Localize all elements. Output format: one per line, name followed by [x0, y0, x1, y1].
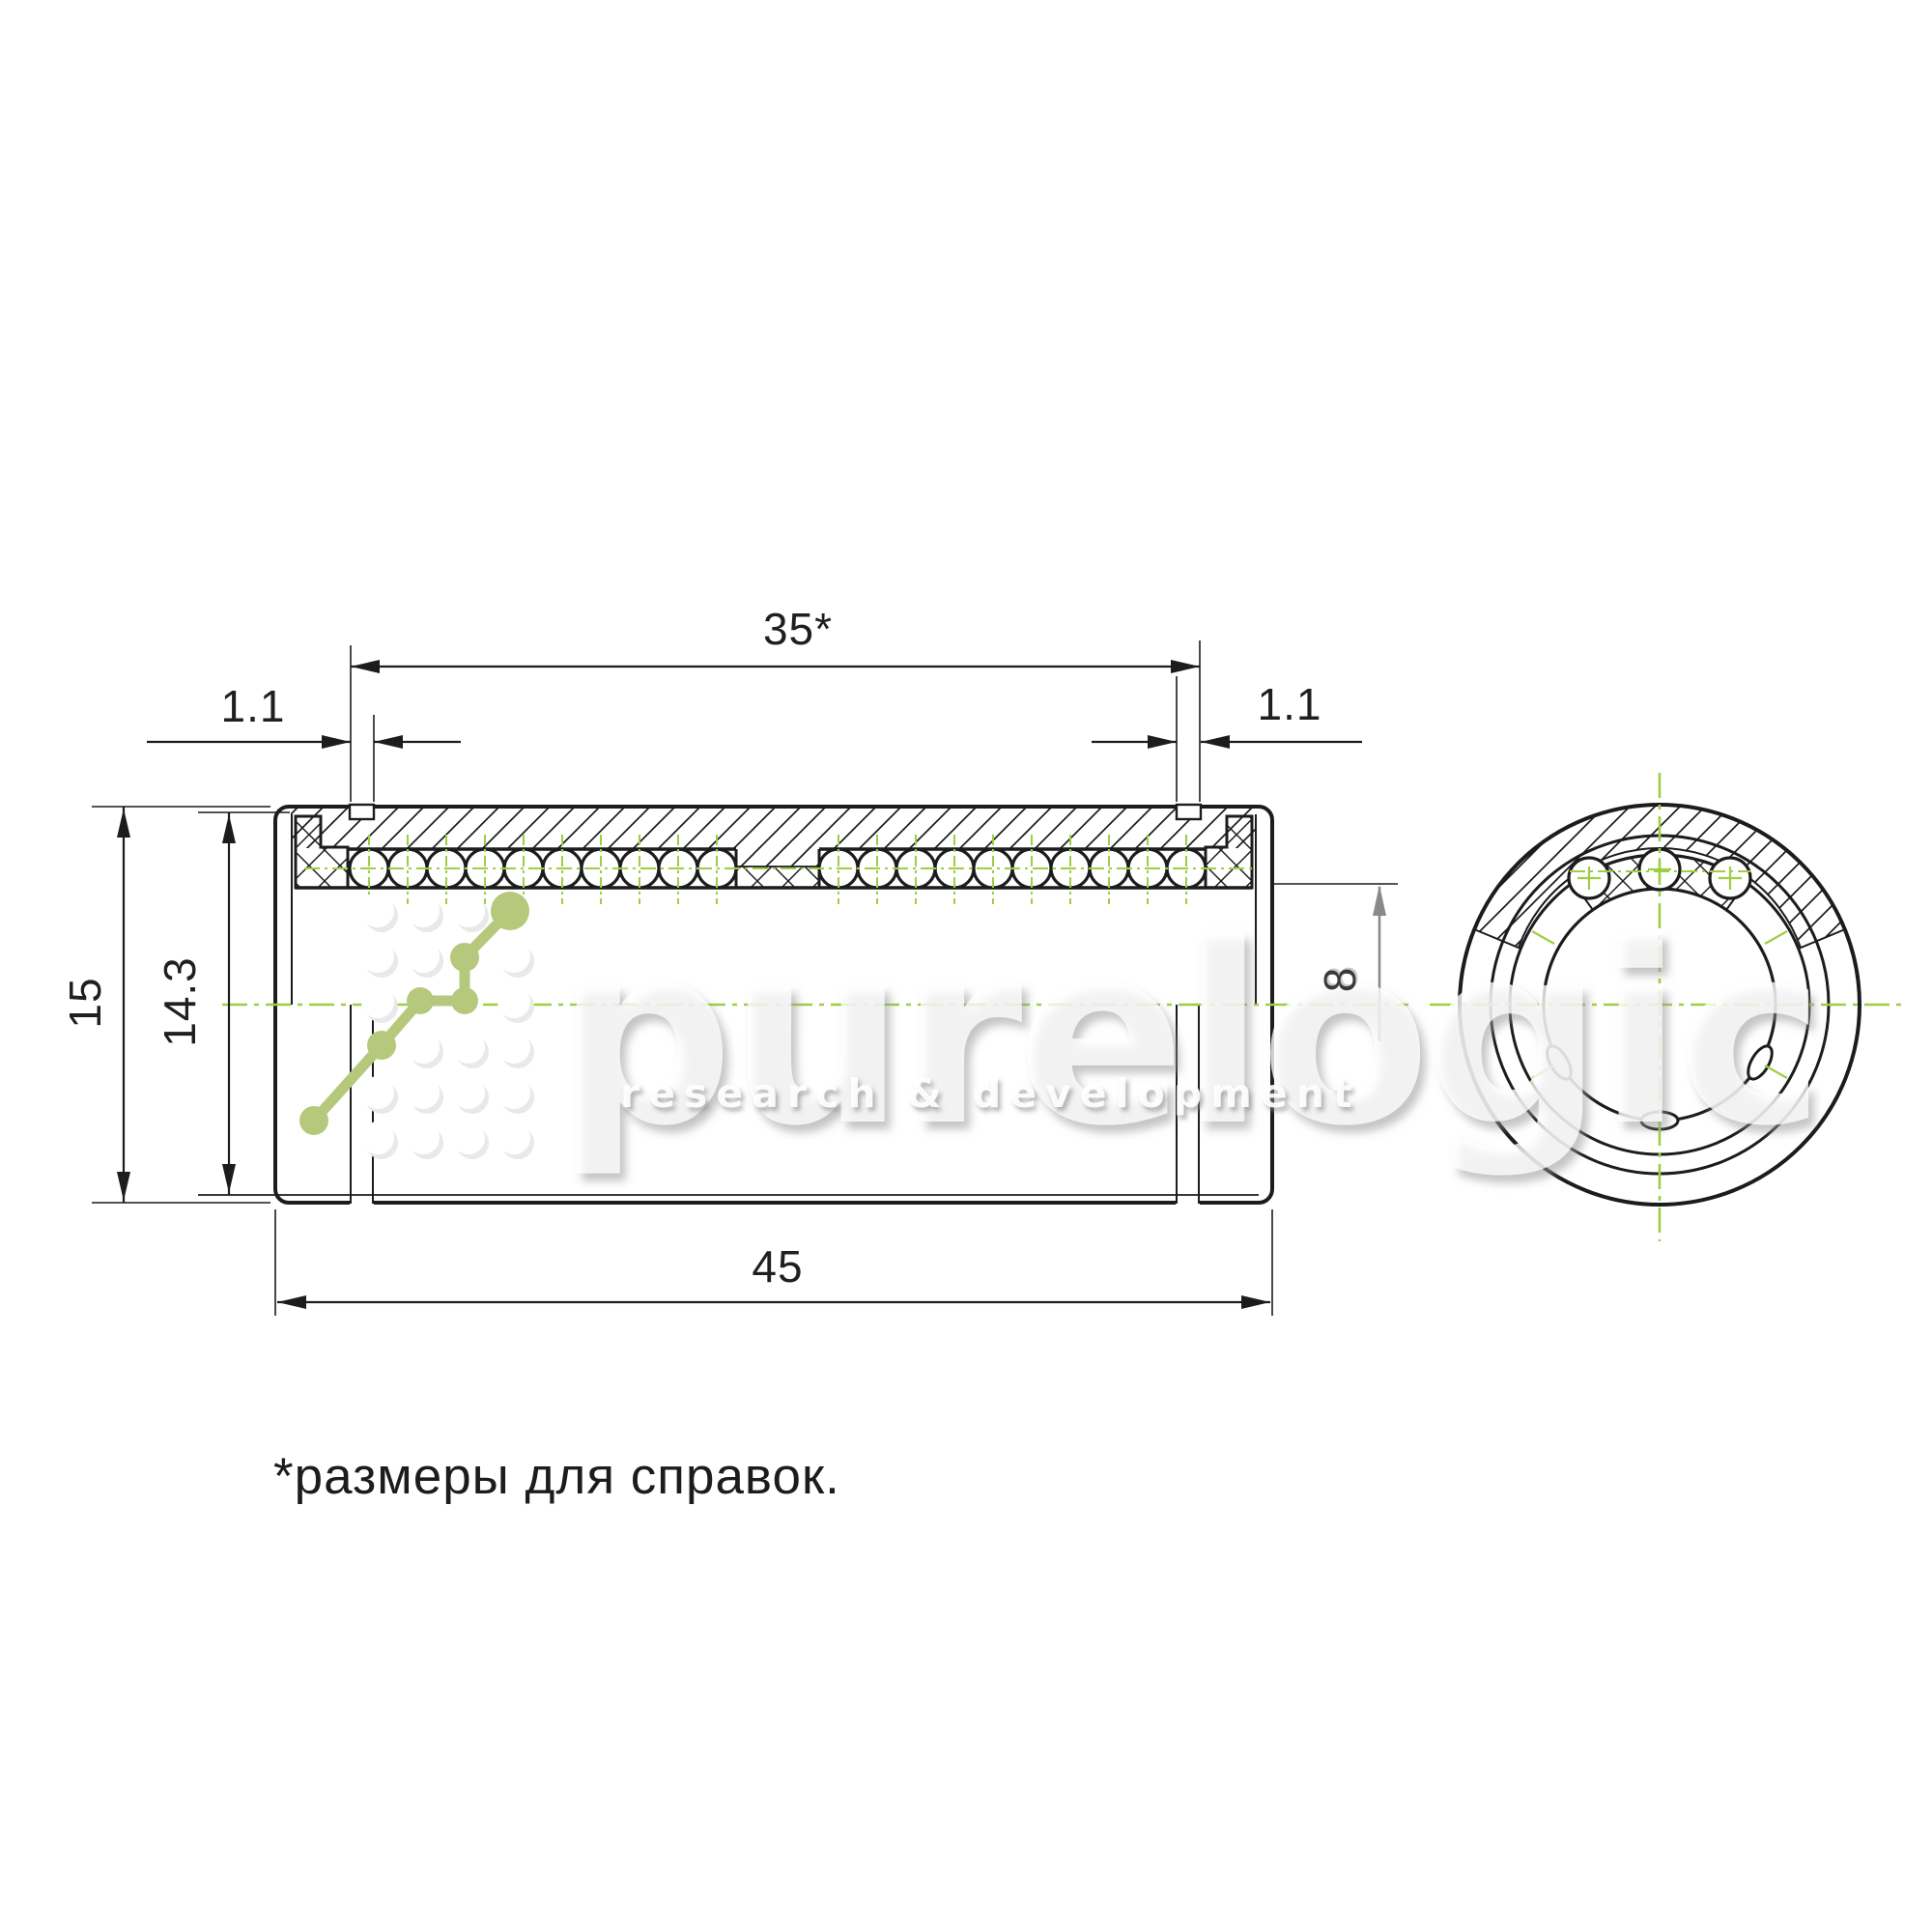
side-section-view: [198, 805, 1272, 1208]
shell-wall-hatch: [291, 809, 1257, 848]
circlip-groove-top-right: [1177, 805, 1201, 819]
technical-drawing-canvas: [0, 0, 1932, 1932]
drawing-page: purelogic research & development 35* 1.1…: [0, 0, 1932, 1932]
dim-label-8: 8: [1314, 967, 1366, 993]
dim-label-35: 35*: [763, 603, 833, 655]
reference-note: *размеры для справок.: [273, 1447, 840, 1506]
groove-gap-bottom-left: [350, 1197, 374, 1208]
dim-label-1-1-left: 1.1: [221, 680, 286, 732]
dim-label-45: 45: [752, 1240, 803, 1293]
mid-recirculation-block: [736, 847, 819, 888]
circlip-groove-top-left: [350, 805, 374, 819]
dim-label-1-1-right: 1.1: [1258, 678, 1322, 730]
groove-gap-bottom-right: [1176, 1197, 1200, 1208]
dim-label-14-3: 14.3: [154, 956, 206, 1047]
dim-label-15: 15: [59, 977, 111, 1028]
dim-8-arrow: [1373, 885, 1386, 916]
